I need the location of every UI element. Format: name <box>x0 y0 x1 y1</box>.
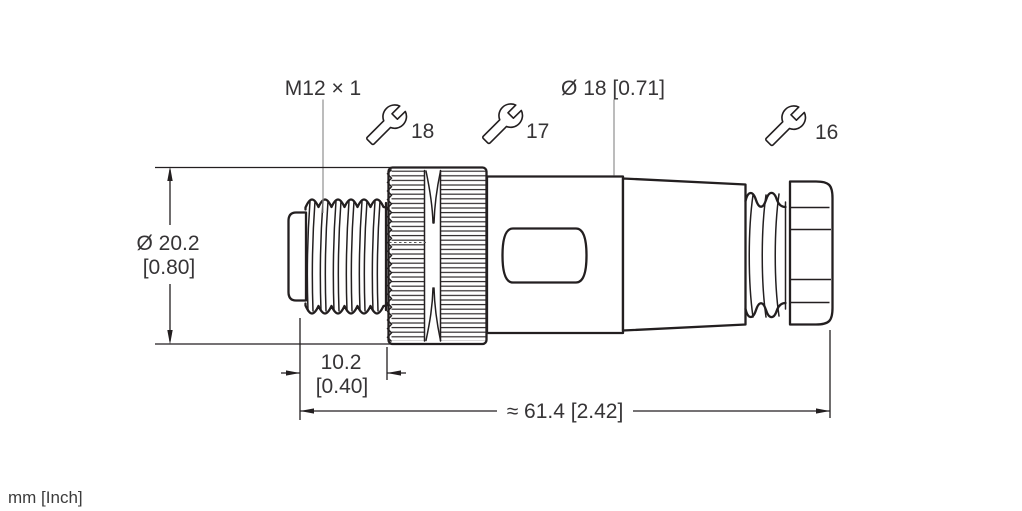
connector-technical-drawing: Ø 20.2 [0.80] 10.2 [0.40] ≈ 61.4 [2.42] … <box>0 0 1022 511</box>
thread-spec-label: M12 × 1 <box>285 77 361 100</box>
thread-flanks <box>307 201 380 311</box>
nut-diameter-mm-label: Ø 20.2 <box>136 232 199 255</box>
cable-gland-hex-nut <box>790 182 833 325</box>
wrench-size-18: 18 <box>367 105 435 144</box>
connector-body <box>487 177 623 334</box>
coupling-nut <box>388 168 487 345</box>
rear-taper <box>623 179 746 331</box>
drawing-canvas: Ø 20.2 [0.80] 10.2 [0.40] ≈ 61.4 [2.42] … <box>0 0 1022 511</box>
wrench-icon <box>483 104 523 143</box>
male-tip <box>289 213 307 301</box>
dim-thread-length: 10.2 [0.40] <box>281 318 406 420</box>
wrench-size-16: 16 <box>766 106 839 145</box>
strain-relief-bellows <box>746 193 786 317</box>
thread-m12-section <box>306 200 387 314</box>
wrench-size-17-label: 17 <box>526 120 549 143</box>
overall-length-label: ≈ 61.4 [2.42] <box>507 400 624 423</box>
dim-nut-diameter: Ø 20.2 [0.80] <box>136 167 427 345</box>
wrench-size-18-label: 18 <box>411 120 434 143</box>
wrench-size-16-label: 16 <box>815 121 838 144</box>
thread-length-inch-label: [0.40] <box>316 375 369 398</box>
wrench-icon <box>766 106 806 145</box>
body-diameter-label: Ø 18 [0.71] <box>561 77 665 100</box>
nut-diameter-inch-label: [0.80] <box>143 256 196 279</box>
connector-drawing <box>289 168 833 345</box>
knurl-front-band <box>392 171 425 342</box>
wrench-size-17: 17 <box>483 104 550 143</box>
knurl-rear-band <box>441 171 486 342</box>
units-note: mm [Inch] <box>8 488 83 507</box>
wrench-icon <box>367 105 407 144</box>
thread-length-mm-label: 10.2 <box>321 351 362 374</box>
